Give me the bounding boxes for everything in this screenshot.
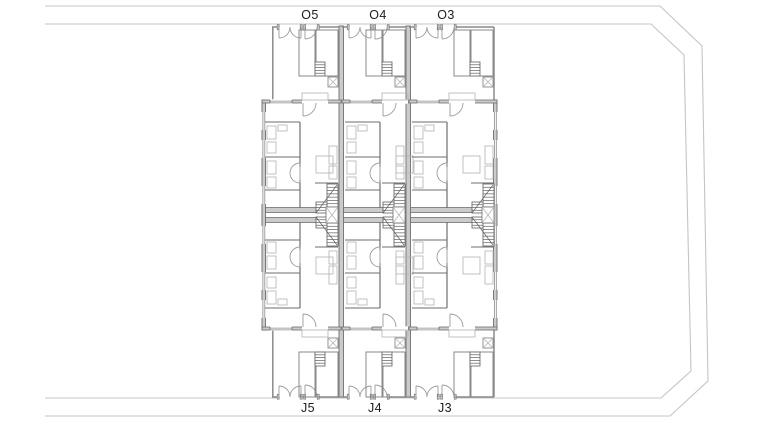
unit-label-bottom-1: J5 <box>301 401 315 415</box>
floorplan: O5 O4 O3 J5 J4 J3 <box>0 0 770 432</box>
unit-label-top-3: O3 <box>437 8 454 22</box>
unit-label-top-1: O5 <box>301 8 318 22</box>
unit-label-top-2: O4 <box>369 8 386 22</box>
floorplan-svg: O5 O4 O3 J5 J4 J3 <box>0 0 770 432</box>
unit-label-bottom-3: J3 <box>438 401 452 415</box>
unit-label-bottom-2: J4 <box>368 401 382 415</box>
